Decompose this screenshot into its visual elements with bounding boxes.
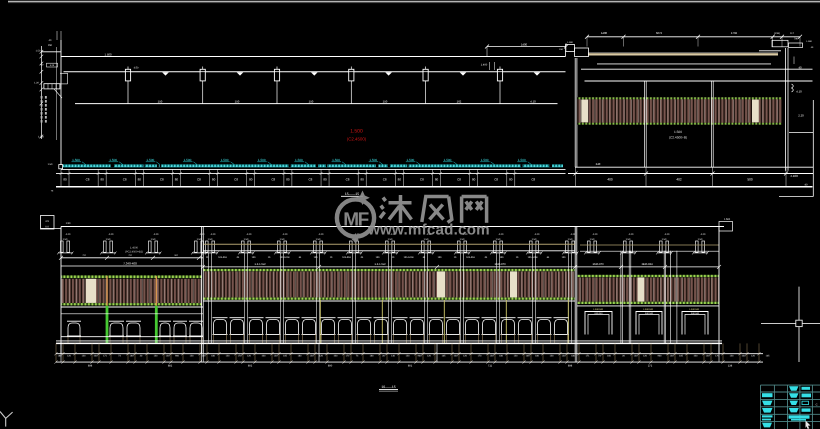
svg-text:4.20: 4.20 bbox=[283, 233, 288, 236]
svg-text:1.500: 1.500 bbox=[295, 158, 303, 162]
svg-text:C8: C8 bbox=[123, 177, 127, 181]
svg-text:1.50: 1.50 bbox=[626, 238, 631, 241]
svg-text:C8: C8 bbox=[420, 177, 424, 181]
svg-text:150: 150 bbox=[309, 100, 314, 104]
svg-text:1.500: 1.500 bbox=[481, 158, 489, 162]
svg-text:1732: 1732 bbox=[731, 31, 738, 35]
svg-text:1.500: 1.500 bbox=[444, 158, 452, 162]
svg-text:104-018: 104-018 bbox=[342, 256, 351, 259]
svg-text:1.500: 1.500 bbox=[350, 128, 363, 134]
svg-text:(C2.4500): (C2.4500) bbox=[347, 136, 367, 141]
svg-text:1.500: 1.500 bbox=[72, 158, 80, 162]
svg-text:80: 80 bbox=[398, 177, 402, 181]
svg-text:80: 80 bbox=[472, 177, 476, 181]
svg-text:500: 500 bbox=[747, 177, 753, 181]
svg-text:10——15: 10——15 bbox=[381, 385, 395, 389]
svg-text:150: 150 bbox=[158, 100, 163, 104]
svg-text:117: 117 bbox=[790, 32, 794, 35]
svg-text:040 040: 040 040 bbox=[595, 312, 604, 315]
svg-text:150: 150 bbox=[48, 44, 53, 47]
svg-text:C8: C8 bbox=[308, 177, 312, 181]
svg-text:150: 150 bbox=[383, 100, 388, 104]
svg-text:www.mfcad.com: www.mfcad.com bbox=[367, 222, 490, 239]
svg-text:1.50: 1.50 bbox=[662, 238, 667, 241]
svg-text:5072: 5072 bbox=[656, 31, 663, 35]
svg-text:1.50: 1.50 bbox=[63, 238, 68, 241]
svg-text:4.20: 4.20 bbox=[109, 233, 114, 236]
svg-text:C8: C8 bbox=[234, 177, 238, 181]
svg-text:1.50: 1.50 bbox=[280, 238, 285, 241]
svg-text:1.50: 1.50 bbox=[36, 50, 41, 53]
svg-text:1-2-1.5x2: 1-2-1.5x2 bbox=[254, 263, 266, 266]
svg-text:790: 790 bbox=[794, 38, 799, 41]
svg-text:C8: C8 bbox=[197, 177, 201, 181]
svg-text:80: 80 bbox=[286, 177, 290, 181]
svg-text:040 040: 040 040 bbox=[645, 312, 654, 315]
svg-text:1-040 040: 1-040 040 bbox=[593, 308, 604, 311]
svg-text:40: 40 bbox=[798, 66, 802, 70]
svg-text:1014-018: 1014-018 bbox=[404, 256, 414, 259]
svg-text:4.50: 4.50 bbox=[134, 67, 139, 70]
svg-text:1040-970: 1040-970 bbox=[494, 263, 506, 266]
svg-text:80: 80 bbox=[509, 177, 513, 181]
svg-text:4.20: 4.20 bbox=[665, 233, 670, 236]
svg-text:C8: C8 bbox=[531, 177, 535, 181]
svg-text:C8: C8 bbox=[86, 177, 90, 181]
svg-text:15——15: 15——15 bbox=[345, 192, 359, 196]
svg-text:80: 80 bbox=[175, 177, 179, 181]
svg-text:1.50: 1.50 bbox=[66, 222, 71, 225]
svg-text:1.50: 1.50 bbox=[106, 238, 111, 241]
svg-text:1-040 040: 1-040 040 bbox=[643, 308, 654, 311]
svg-text:80: 80 bbox=[323, 177, 327, 181]
svg-text:80: 80 bbox=[212, 177, 216, 181]
svg-text:7.340-400: 7.340-400 bbox=[123, 262, 137, 266]
svg-text:1940-934: 1940-934 bbox=[641, 263, 653, 266]
svg-text:1.50: 1.50 bbox=[244, 238, 249, 241]
svg-text:882: 882 bbox=[168, 364, 173, 367]
svg-text:1.500: 1.500 bbox=[184, 158, 192, 162]
svg-text:80: 80 bbox=[100, 177, 104, 181]
svg-text:1.500: 1.500 bbox=[146, 158, 154, 162]
svg-text:1.50: 1.50 bbox=[532, 238, 537, 241]
svg-text:402: 402 bbox=[676, 177, 682, 181]
svg-text:1.500: 1.500 bbox=[105, 53, 112, 57]
svg-text:4.20: 4.20 bbox=[211, 233, 216, 236]
svg-text:801: 801 bbox=[408, 364, 413, 367]
svg-text:1.400: 1.400 bbox=[481, 64, 488, 67]
svg-text:(233): (233) bbox=[774, 32, 780, 35]
svg-text:1400: 1400 bbox=[521, 42, 528, 46]
svg-text:1.50: 1.50 bbox=[208, 238, 213, 241]
svg-text:C8: C8 bbox=[494, 177, 498, 181]
svg-text:1.500: 1.500 bbox=[806, 40, 812, 43]
svg-text:1-2-1.5x2: 1-2-1.5x2 bbox=[374, 263, 386, 266]
svg-text:898: 898 bbox=[568, 364, 573, 367]
svg-text:4.5: 4.5 bbox=[45, 220, 49, 223]
svg-text:4.20: 4.20 bbox=[593, 233, 598, 236]
svg-text:2.20: 2.20 bbox=[798, 114, 804, 118]
svg-text:240: 240 bbox=[596, 162, 601, 166]
svg-text:4.20: 4.20 bbox=[319, 233, 324, 236]
svg-text:138: 138 bbox=[728, 364, 733, 367]
svg-text:4.20: 4.20 bbox=[629, 233, 634, 236]
svg-text:162: 162 bbox=[457, 100, 462, 104]
svg-text:4.10: 4.10 bbox=[530, 100, 536, 104]
svg-text:1.50: 1.50 bbox=[698, 238, 703, 241]
svg-text:C: C bbox=[816, 404, 818, 407]
svg-text:1.500: 1.500 bbox=[518, 158, 526, 162]
svg-text:1.20: 1.20 bbox=[34, 82, 39, 85]
svg-text:4.20: 4.20 bbox=[499, 233, 504, 236]
svg-text:272: 272 bbox=[648, 364, 653, 367]
svg-text:1.50: 1.50 bbox=[197, 238, 202, 241]
svg-text:802: 802 bbox=[248, 364, 253, 367]
svg-text:C8: C8 bbox=[346, 177, 350, 181]
svg-text:4.20: 4.20 bbox=[535, 233, 540, 236]
svg-text:1.50: 1.50 bbox=[48, 163, 53, 166]
svg-text:80: 80 bbox=[138, 177, 142, 181]
svg-text:C8: C8 bbox=[271, 177, 275, 181]
svg-text:C8: C8 bbox=[160, 177, 164, 181]
svg-text:1014-018: 1014-018 bbox=[280, 256, 290, 259]
svg-text:1.500: 1.500 bbox=[258, 158, 266, 162]
svg-text:(PC2.4500+B2): (PC2.4500+B2) bbox=[125, 251, 143, 254]
svg-text:1.50: 1.50 bbox=[496, 238, 501, 241]
svg-text:1.500: 1.500 bbox=[369, 158, 377, 162]
svg-text:80: 80 bbox=[435, 177, 439, 181]
svg-text:1.50: 1.50 bbox=[316, 238, 321, 241]
svg-text:4.20: 4.20 bbox=[200, 233, 205, 236]
svg-text:C8: C8 bbox=[383, 177, 387, 181]
svg-text:4.20: 4.20 bbox=[247, 233, 252, 236]
svg-text:1.500: 1.500 bbox=[332, 158, 340, 162]
svg-text:MF: MF bbox=[343, 210, 368, 231]
svg-text:4.20: 4.20 bbox=[154, 233, 159, 236]
svg-text:150: 150 bbox=[235, 100, 240, 104]
svg-text:4.20: 4.20 bbox=[66, 233, 71, 236]
svg-text:104-018: 104-018 bbox=[218, 256, 227, 259]
svg-text:800: 800 bbox=[328, 364, 333, 367]
svg-text:1.500: 1.500 bbox=[38, 136, 45, 139]
svg-text:1040-970: 1040-970 bbox=[592, 263, 604, 266]
svg-text:1.4500: 1.4500 bbox=[130, 247, 138, 250]
svg-text:80: 80 bbox=[361, 177, 365, 181]
svg-text:898: 898 bbox=[88, 364, 93, 367]
svg-text:C8: C8 bbox=[457, 177, 461, 181]
svg-text:1.500: 1.500 bbox=[109, 158, 117, 162]
svg-text:1.50: 1.50 bbox=[590, 238, 595, 241]
svg-text:1014-018: 1014-018 bbox=[528, 256, 538, 259]
svg-text:1-040 040: 1-040 040 bbox=[689, 308, 700, 311]
svg-text:711: 711 bbox=[488, 364, 493, 367]
svg-text:1.500: 1.500 bbox=[406, 158, 414, 162]
svg-text:104-018: 104-018 bbox=[466, 256, 475, 259]
svg-text:80: 80 bbox=[63, 177, 67, 181]
svg-text:1.500: 1.500 bbox=[567, 41, 573, 44]
svg-text:1.500: 1.500 bbox=[724, 218, 731, 221]
svg-text:(C2.4500+B): (C2.4500+B) bbox=[669, 135, 687, 139]
svg-text:1.500: 1.500 bbox=[674, 130, 682, 134]
svg-text:4.20: 4.20 bbox=[701, 233, 706, 236]
svg-text:80: 80 bbox=[249, 177, 253, 181]
svg-text:1400: 1400 bbox=[601, 31, 608, 35]
svg-text:4.10: 4.10 bbox=[796, 90, 802, 94]
svg-text:4.100: 4.100 bbox=[790, 174, 798, 178]
svg-text:040 040: 040 040 bbox=[691, 312, 700, 315]
svg-text:1.50: 1.50 bbox=[568, 238, 573, 241]
svg-text:1.50: 1.50 bbox=[151, 238, 156, 241]
svg-text:400: 400 bbox=[607, 177, 613, 181]
svg-text:1.500: 1.500 bbox=[221, 158, 229, 162]
